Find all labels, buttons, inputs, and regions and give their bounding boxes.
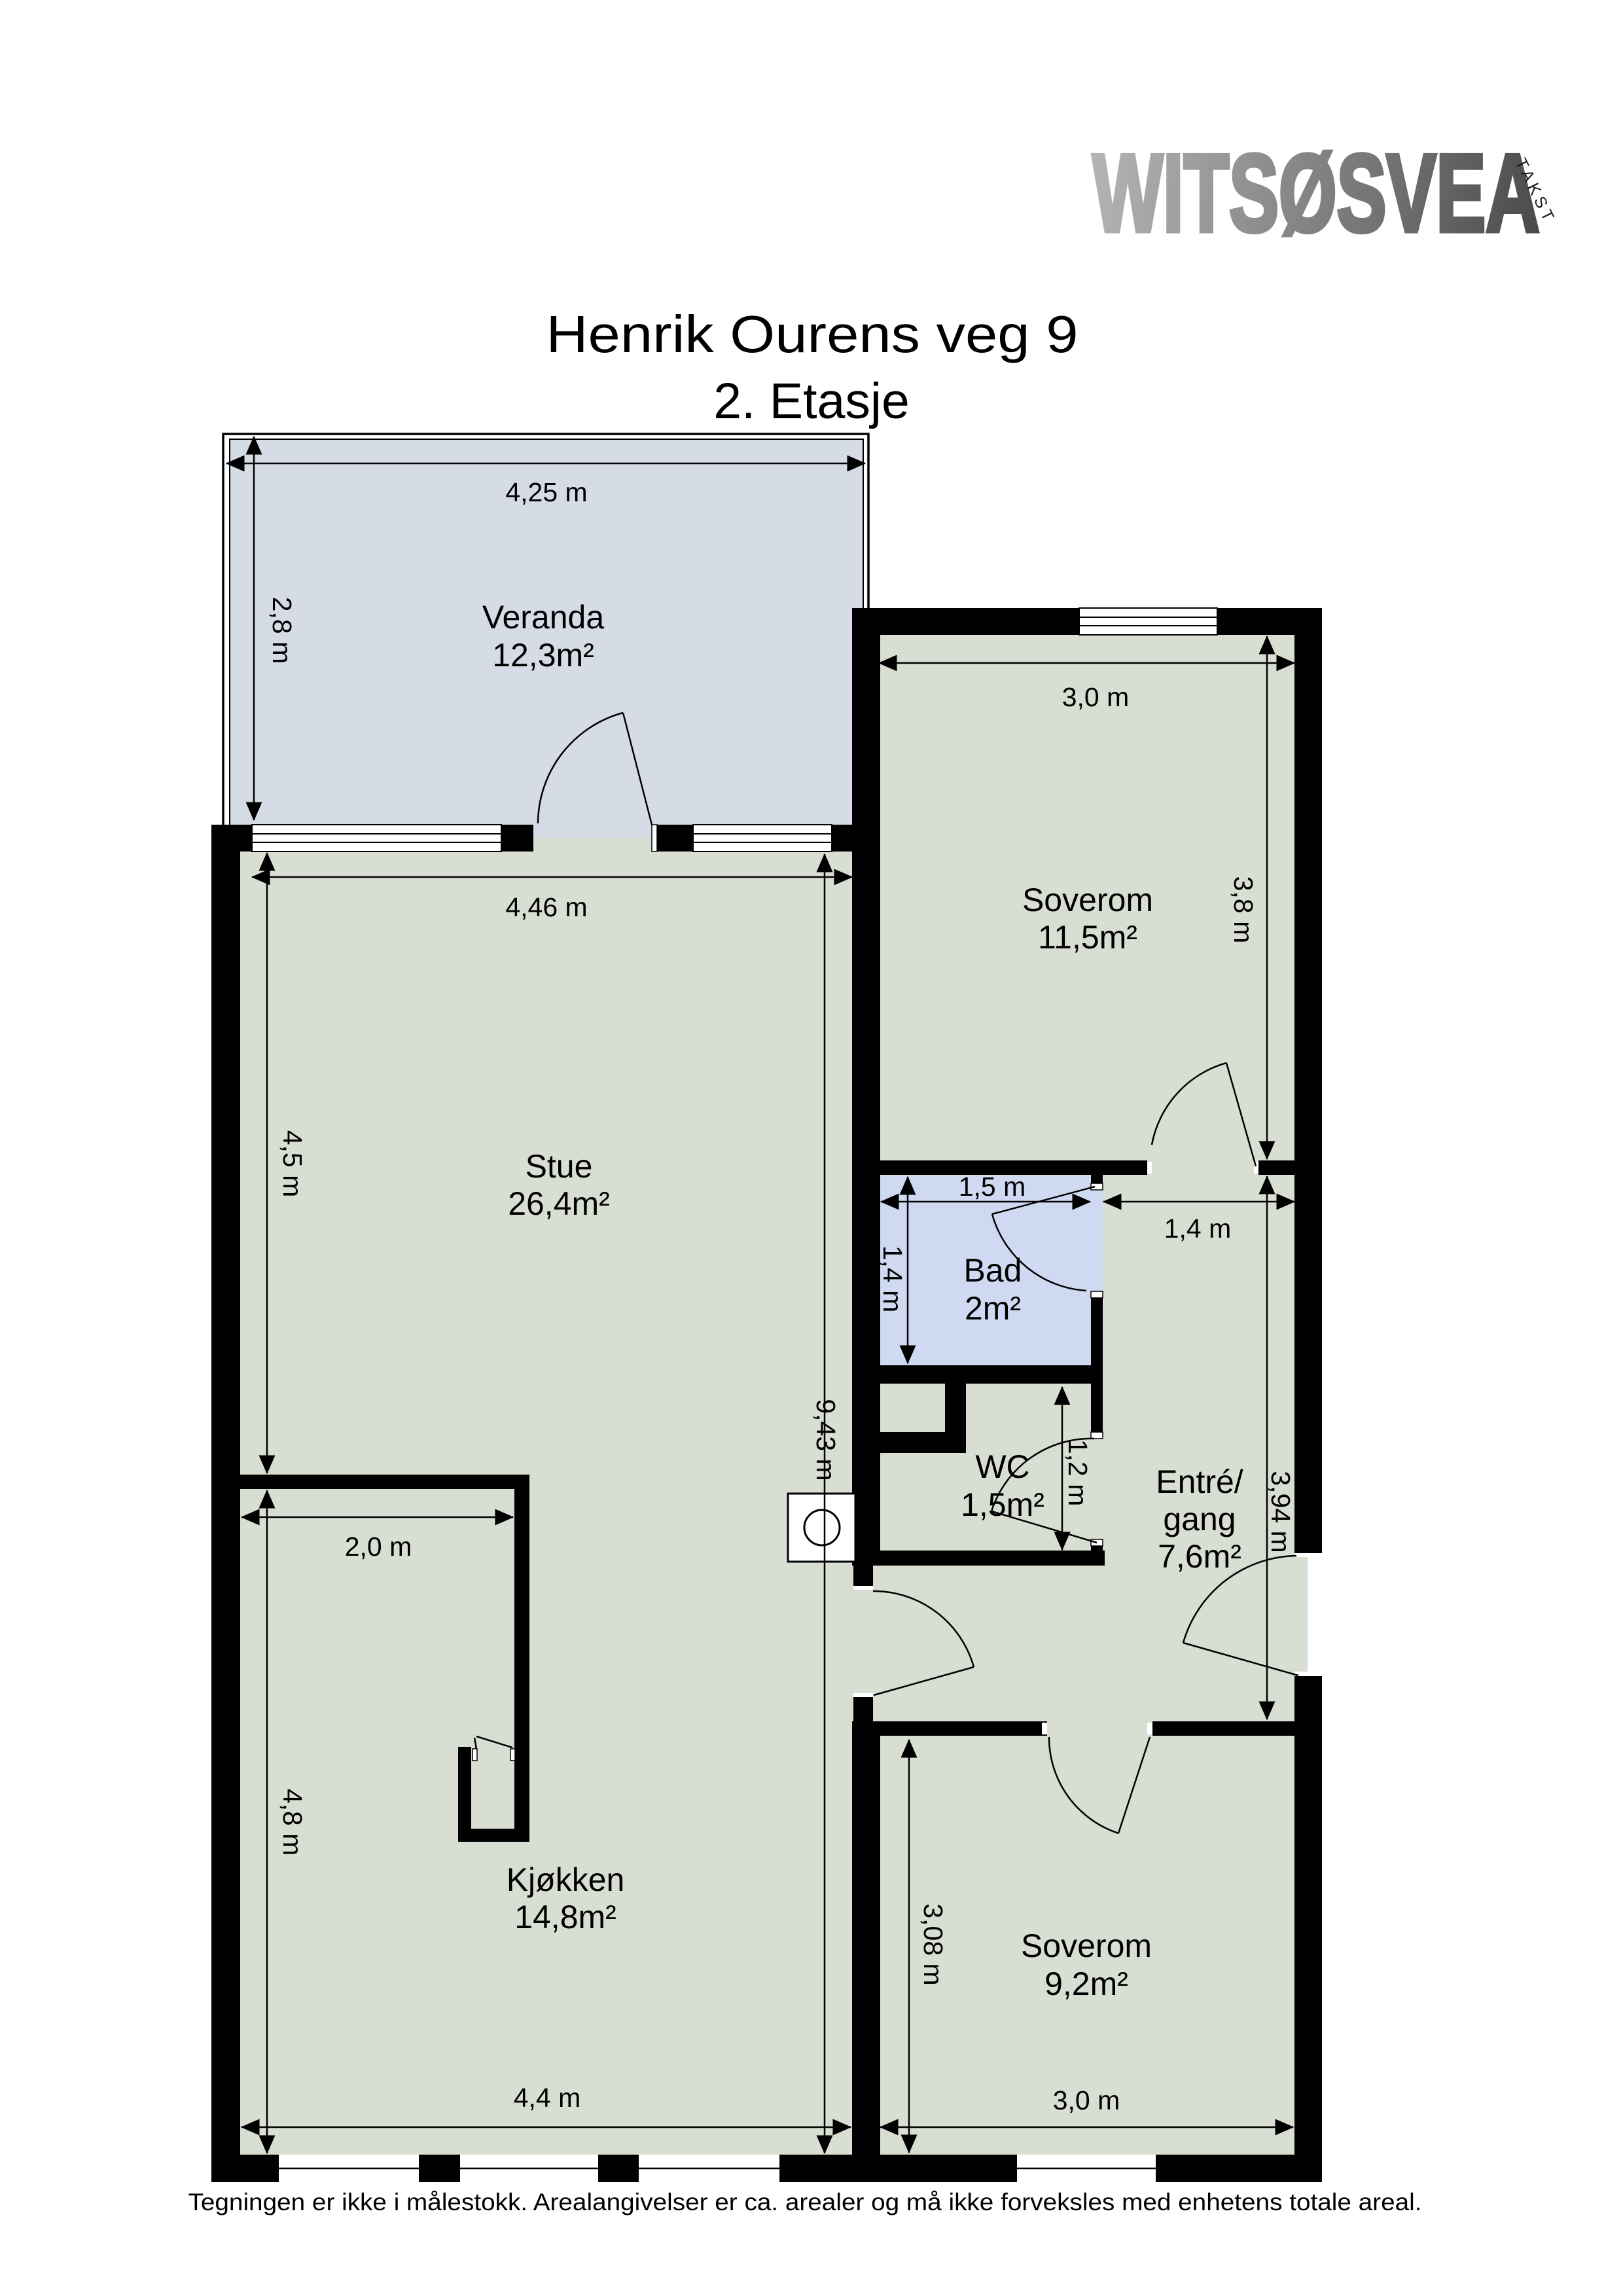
svg-text:2. Etasje: 2. Etasje: [713, 373, 910, 429]
svg-text:2,8 m: 2,8 m: [267, 597, 297, 664]
svg-text:1,5 m: 1,5 m: [959, 1172, 1026, 1202]
svg-text:3,8 m: 3,8 m: [1228, 876, 1258, 944]
svg-text:1,4 m: 1,4 m: [1164, 1213, 1232, 1244]
svg-text:WITSØSVEA: WITSØSVEA: [1093, 132, 1540, 255]
svg-text:Kjøkken14,8m²: Kjøkken14,8m²: [507, 1861, 625, 1935]
svg-text:Entré/gang7,6m²: Entré/gang7,6m²: [1156, 1463, 1243, 1575]
svg-text:3,0 m: 3,0 m: [1053, 2085, 1120, 2115]
svg-text:2,0 m: 2,0 m: [345, 1532, 412, 1562]
svg-text:4,4 m: 4,4 m: [514, 2083, 581, 2113]
svg-text:1,4 m: 1,4 m: [878, 1246, 908, 1313]
svg-text:4,46 m: 4,46 m: [505, 892, 587, 922]
svg-text:4,25 m: 4,25 m: [505, 477, 587, 507]
svg-text:3,08 m: 3,08 m: [918, 1903, 948, 1985]
svg-text:9,43 m: 9,43 m: [811, 1399, 841, 1480]
svg-text:4,8 m: 4,8 m: [277, 1789, 308, 1856]
svg-text:1,2 m: 1,2 m: [1063, 1439, 1093, 1507]
svg-text:Tegningen er ikke i målestokk.: Tegningen er ikke i målestokk. Arealangi…: [188, 2189, 1422, 2215]
svg-text:Soverom11,5m²: Soverom11,5m²: [1022, 882, 1153, 956]
svg-text:Henrik Ourens veg 9: Henrik Ourens veg 9: [546, 305, 1079, 363]
svg-text:3,0 m: 3,0 m: [1062, 682, 1130, 712]
svg-text:3,94 m: 3,94 m: [1266, 1471, 1296, 1552]
svg-text:4,5 m: 4,5 m: [277, 1130, 308, 1198]
